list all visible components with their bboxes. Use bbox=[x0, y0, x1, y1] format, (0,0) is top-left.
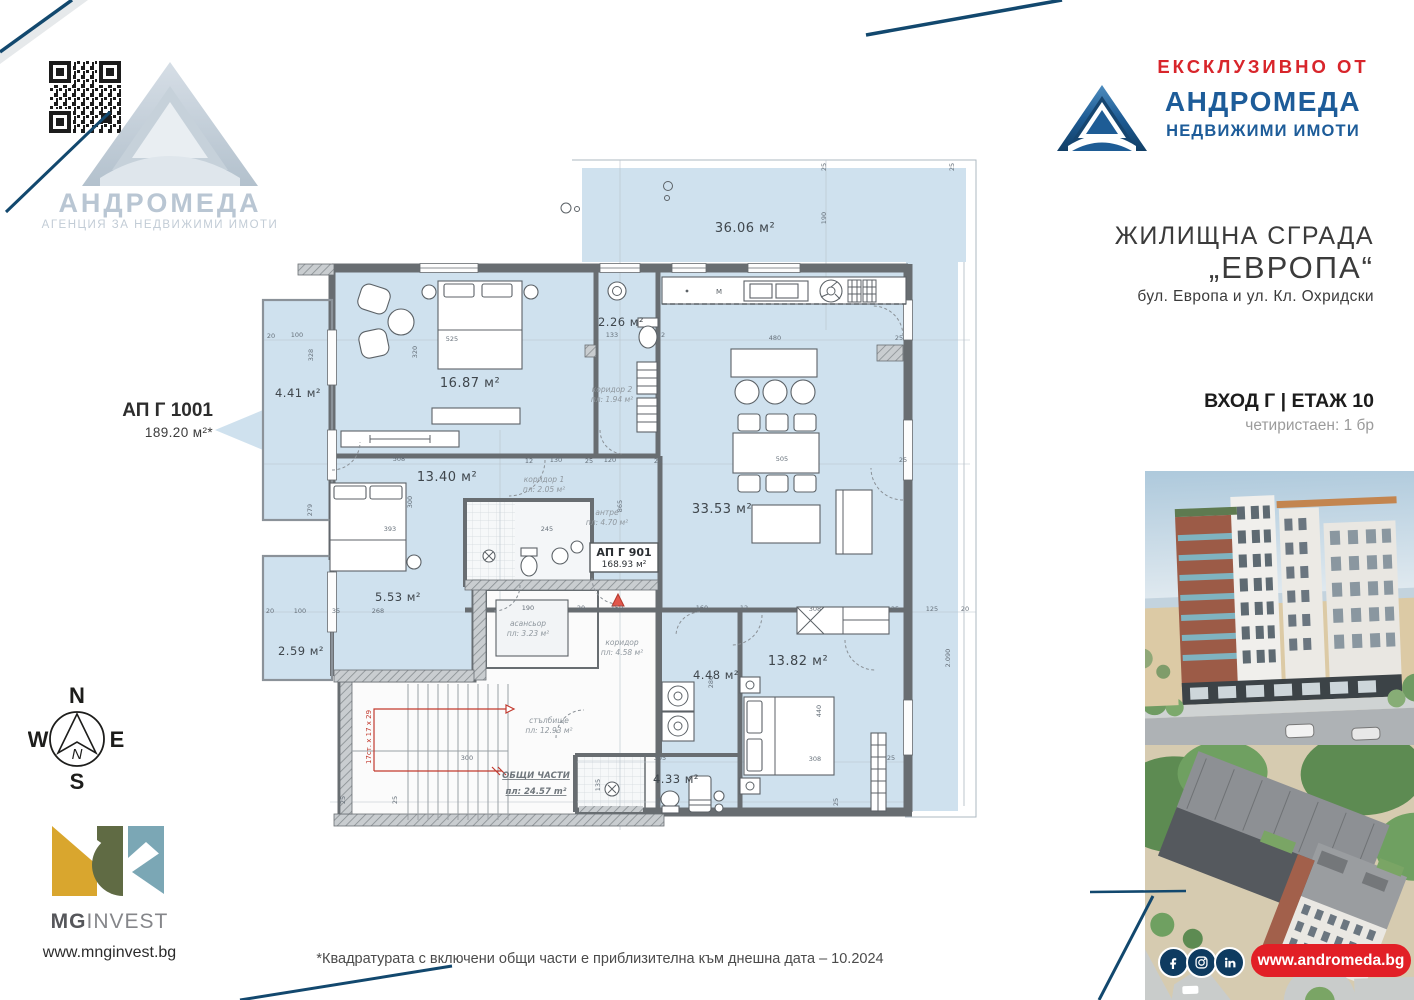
svg-text:20: 20 bbox=[577, 604, 585, 612]
instagram-icon[interactable] bbox=[1186, 947, 1217, 978]
svg-text:25: 25 bbox=[948, 163, 956, 171]
agency-brand-subtitle: НЕДВИЖИМИ ИМОТИ bbox=[1150, 122, 1376, 141]
svg-text:S: S bbox=[70, 769, 85, 794]
svg-text:АП Г 901: АП Г 901 bbox=[596, 546, 651, 559]
svg-text:525: 525 bbox=[446, 335, 458, 343]
svg-text:пл: 12.93 м²: пл: 12.93 м² bbox=[525, 726, 572, 735]
building-address: бул. Европа и ул. Кл. Охридски bbox=[950, 288, 1374, 306]
svg-text:120: 120 bbox=[604, 456, 616, 464]
building-name: „ЕВРОПА“ bbox=[950, 250, 1374, 286]
bedroom2-label: 13.40 м² bbox=[417, 470, 477, 485]
andromeda-watermark-logo bbox=[80, 58, 260, 190]
svg-text:150: 150 bbox=[611, 604, 623, 612]
svg-text:328: 328 bbox=[307, 349, 315, 361]
svg-text:160: 160 bbox=[696, 604, 708, 612]
entrance-floor: ВХОД Г | ЕТАЖ 10 bbox=[950, 390, 1374, 413]
svg-text:300: 300 bbox=[461, 754, 473, 762]
svg-text:25: 25 bbox=[820, 163, 828, 171]
svg-text:пл: 2.05 м²: пл: 2.05 м² bbox=[523, 485, 565, 494]
svg-text:300: 300 bbox=[406, 496, 414, 508]
developer-website[interactable]: www.mnginvest.bg bbox=[12, 944, 207, 962]
wc-label: 2.26 м² bbox=[598, 315, 644, 329]
svg-text:190: 190 bbox=[522, 604, 534, 612]
svg-text:279: 279 bbox=[306, 504, 314, 516]
building-render-front bbox=[1145, 471, 1414, 745]
svg-text:25: 25 bbox=[887, 754, 895, 762]
svg-text:12: 12 bbox=[740, 604, 748, 612]
bedroom1-label: 16.87 м² bbox=[440, 376, 500, 391]
developer-name-bold: MG bbox=[51, 910, 87, 933]
svg-text:25: 25 bbox=[895, 334, 903, 342]
svg-text:35: 35 bbox=[332, 607, 340, 615]
svg-text:пл: 1.94 м²: пл: 1.94 м² bbox=[591, 395, 633, 404]
balcony2-label: 2.59 м² bbox=[278, 644, 324, 658]
svg-text:440: 440 bbox=[815, 705, 823, 717]
svg-text:коридор 2: коридор 2 bbox=[592, 385, 633, 394]
svg-text:25: 25 bbox=[585, 457, 593, 465]
svg-text:коридор: коридор bbox=[605, 638, 639, 647]
agency-website-button[interactable]: www.andromeda.bg bbox=[1251, 944, 1411, 977]
facebook-icon[interactable] bbox=[1158, 947, 1189, 978]
svg-text:12: 12 bbox=[657, 331, 665, 339]
svg-text:асансьор: асансьор bbox=[510, 619, 546, 628]
svg-text:пл: 4.70 м²: пл: 4.70 м² bbox=[586, 518, 628, 527]
bathroom2-label: 4.33 м² bbox=[653, 772, 699, 786]
svg-text:25: 25 bbox=[832, 798, 840, 806]
svg-text:пл: 4.58 м²: пл: 4.58 м² bbox=[601, 648, 643, 657]
svg-text:393: 393 bbox=[384, 525, 396, 533]
svg-text:268: 268 bbox=[372, 607, 384, 615]
agency-brand-name: АНДРОМЕДА bbox=[1150, 86, 1376, 118]
svg-text:100: 100 bbox=[294, 607, 306, 615]
svg-text:W: W bbox=[28, 727, 49, 752]
callout-unit-area: 189.20 м²* bbox=[58, 425, 213, 440]
unit-id-box: АП Г 901 168.93 м² bbox=[590, 543, 658, 572]
linkedin-icon[interactable] bbox=[1214, 947, 1245, 978]
developer-name: MGINVEST bbox=[12, 910, 207, 934]
callout-unit-id: АП Г 1001 bbox=[58, 400, 213, 422]
svg-text:25: 25 bbox=[391, 796, 399, 804]
bedroom3-label: 13.82 м² bbox=[768, 654, 828, 669]
svg-text:25: 25 bbox=[899, 456, 907, 464]
svg-text:M: M bbox=[716, 288, 722, 296]
svg-text:125: 125 bbox=[926, 605, 938, 613]
svg-text:2.090: 2.090 bbox=[944, 649, 952, 668]
svg-text:антре: антре bbox=[595, 508, 619, 517]
svg-text:N: N bbox=[72, 746, 83, 763]
disclaimer-note: *Квадратурата с включени общи части е пр… bbox=[300, 951, 900, 967]
svg-text:135: 135 bbox=[594, 779, 602, 791]
svg-text:пл: 24.57 m²: пл: 24.57 m² bbox=[506, 787, 567, 797]
exclusive-label: ЕКСКЛУЗИВНО ОТ bbox=[1150, 56, 1376, 78]
building-type: ЖИЛИЩНА СГРАДА bbox=[950, 222, 1374, 251]
svg-text:20: 20 bbox=[267, 332, 275, 340]
stairs-note: 17ст. x 17 x 29 bbox=[365, 710, 373, 764]
svg-text:190: 190 bbox=[820, 212, 828, 224]
svg-text:20: 20 bbox=[266, 607, 274, 615]
flyer-canvas: АНДРОМЕДА АГЕНЦИЯ ЗА НЕДВИЖИМИ ИМОТИ ЕКС… bbox=[0, 0, 1414, 1000]
svg-text:133: 133 bbox=[606, 331, 618, 339]
developer-name-rest: INVEST bbox=[86, 910, 168, 933]
floor-plan: M bbox=[250, 150, 990, 840]
svg-text:стълбище: стълбище bbox=[529, 716, 569, 725]
svg-text:25: 25 bbox=[654, 457, 662, 465]
balcony1-label: 4.41 м² bbox=[275, 386, 321, 400]
svg-text:25: 25 bbox=[654, 798, 662, 806]
svg-text:480: 480 bbox=[769, 334, 781, 342]
svg-text:168.93 м²: 168.93 м² bbox=[602, 560, 647, 570]
svg-text:245: 245 bbox=[541, 525, 553, 533]
svg-text:ОБЩИ ЧАСТИ: ОБЩИ ЧАСТИ bbox=[502, 771, 570, 781]
svg-text:320: 320 bbox=[411, 346, 419, 358]
andromeda-logo-icon bbox=[1056, 82, 1148, 154]
compass-rose: N W E S N bbox=[28, 683, 128, 795]
terrace-area bbox=[582, 168, 966, 262]
svg-text:308: 308 bbox=[809, 605, 821, 613]
svg-text:N: N bbox=[69, 683, 85, 708]
svg-text:305: 305 bbox=[654, 754, 666, 762]
svg-text:508: 508 bbox=[393, 455, 405, 463]
mginvest-logo bbox=[50, 818, 168, 898]
wardrobe-label: 5.53 м² bbox=[375, 590, 421, 604]
svg-text:пл: 3.23 м²: пл: 3.23 м² bbox=[507, 629, 549, 638]
svg-text:25: 25 bbox=[339, 796, 347, 804]
svg-text:E: E bbox=[110, 727, 125, 752]
svg-text:308: 308 bbox=[809, 755, 821, 763]
svg-text:коридор 1: коридор 1 bbox=[524, 475, 564, 484]
svg-text:130: 130 bbox=[550, 456, 562, 464]
laundry-label: 4.48 м² bbox=[693, 668, 739, 682]
availability: четиристаен: 1 бр bbox=[950, 417, 1374, 435]
svg-text:505: 505 bbox=[776, 455, 788, 463]
svg-text:100: 100 bbox=[291, 331, 303, 339]
terrace-label: 36.06 м² bbox=[715, 221, 775, 236]
svg-text:35: 35 bbox=[891, 605, 899, 613]
svg-text:20: 20 bbox=[961, 605, 969, 613]
apartment-callout: АП Г 1001 189.20 м²* bbox=[58, 400, 213, 440]
svg-text:12: 12 bbox=[525, 457, 533, 465]
living-label: 33.53 м² bbox=[692, 502, 752, 517]
